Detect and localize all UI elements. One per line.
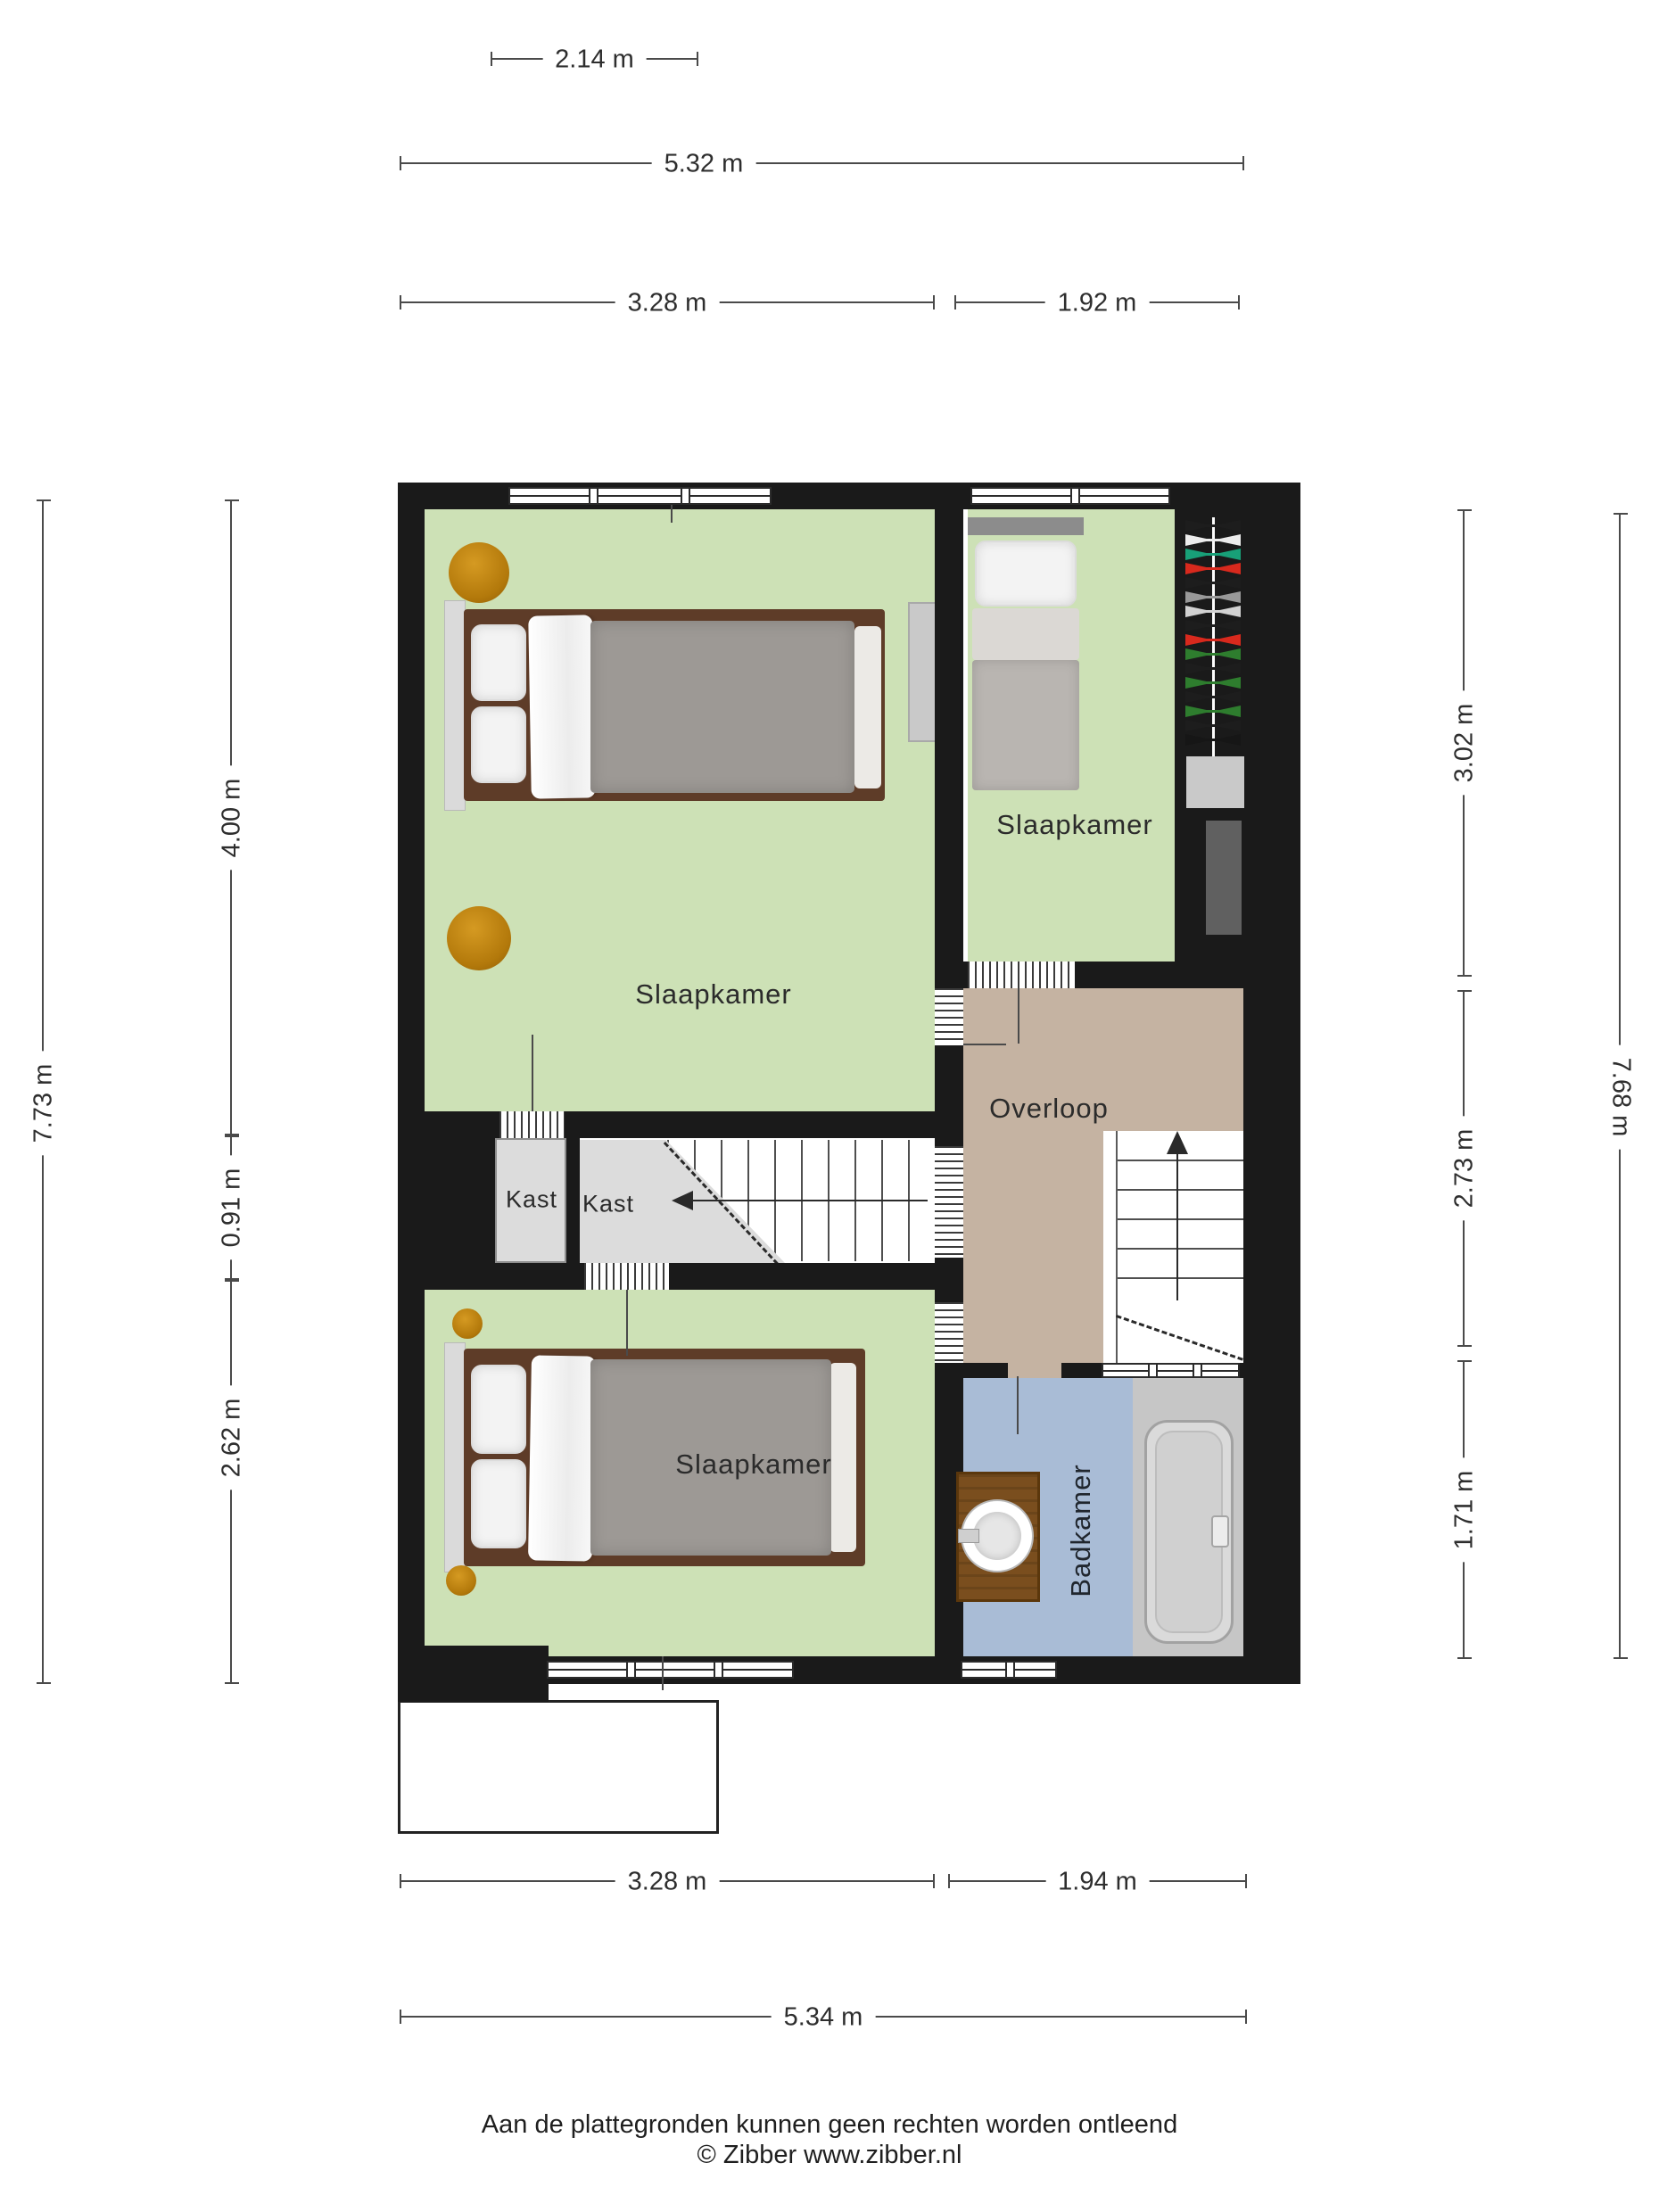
clothes-hanger-icon — [1185, 634, 1241, 646]
clothes-hanger-icon — [1185, 677, 1241, 689]
window-mullion — [589, 487, 598, 505]
window-mullion — [1005, 1661, 1015, 1679]
clothes-hanger-icon — [1185, 520, 1241, 532]
door-frame-tick — [963, 1044, 1006, 1045]
dim-left-total: 7.73 m — [42, 499, 44, 1684]
dim-right-mid: 2.73 m — [1463, 990, 1465, 1347]
dim-bottom-total: 5.34 m — [400, 2016, 1247, 2018]
dim-label: 3.28 m — [615, 1868, 720, 1897]
door-leaf — [1017, 1376, 1019, 1434]
dim-label: 5.34 m — [772, 2003, 876, 2033]
clothes-hanger-icon — [1185, 720, 1241, 731]
stairs-landing-arrow-line — [1176, 1152, 1178, 1300]
dim-label: 1.71 m — [1450, 1457, 1480, 1562]
window-mullion — [714, 1661, 723, 1679]
stairs-mid-arrow-icon — [672, 1191, 693, 1210]
stairs-mid-arrow-line — [691, 1200, 928, 1201]
clothes-hanger-icon — [1185, 663, 1241, 674]
wardrobe-shelf — [1186, 756, 1244, 808]
bed-pillow — [471, 706, 526, 783]
window-bathroom-top — [1102, 1363, 1240, 1378]
pouf — [452, 1308, 483, 1339]
room-label-bedroom-front: Slaapkamer — [675, 1449, 831, 1481]
bed-mattress-edge — [829, 1363, 856, 1552]
wall-left — [398, 483, 425, 1684]
door-leaf — [1018, 988, 1019, 1044]
window-top-right — [970, 487, 1170, 505]
bed-pillow — [471, 1459, 526, 1548]
shaft — [1206, 821, 1242, 935]
window-mullion — [626, 1661, 636, 1679]
room-label-landing: Overloop — [989, 1093, 1109, 1125]
clothes-hanger-icon — [1185, 549, 1241, 560]
room-label-closet-right: Kast — [582, 1191, 634, 1218]
wall-right-upper — [1274, 483, 1300, 970]
clothes-hanger-icon — [1185, 620, 1241, 631]
dim-label: 0.91 m — [218, 1156, 247, 1260]
clothes-hanger-icon — [1185, 534, 1241, 546]
dim-label: 7.68 m — [1606, 1045, 1636, 1150]
clothes-hanger-icon — [1185, 591, 1241, 603]
door-bedroom-back — [968, 962, 1075, 988]
door-landing-lower — [935, 1302, 963, 1363]
door-leaf — [626, 1290, 628, 1356]
clothes-hanger-icon — [1185, 691, 1241, 703]
clothes-hanger-icon — [1185, 648, 1241, 660]
bed-headboard — [444, 600, 466, 811]
dim-label: 2.62 m — [218, 1385, 247, 1490]
pouf — [446, 1565, 476, 1596]
dim-top-total: 5.32 m — [400, 162, 1244, 164]
wardrobe-rack — [1179, 517, 1247, 756]
wall-tick — [671, 505, 673, 523]
bed-mattress-edge — [854, 626, 881, 788]
window-mullion — [1193, 1363, 1202, 1378]
window-mullion — [1148, 1363, 1158, 1378]
bathtub-faucet-icon — [1211, 1515, 1229, 1548]
dim-left-mid: 0.91 m — [230, 1135, 232, 1280]
floor-bedroom-main — [425, 509, 935, 1111]
stairs-landing-arrow-icon — [1167, 1131, 1188, 1154]
dim-label: 1.94 m — [1045, 1868, 1150, 1897]
bed-sheet — [528, 1355, 596, 1561]
floorplan-page: { "rooms": { "bedroom_main": "Slaapkamer… — [0, 0, 1659, 2212]
pouf — [449, 542, 509, 603]
bed-headboard — [968, 517, 1084, 535]
dim-right-top: 3.02 m — [1463, 509, 1465, 977]
window-mullion — [681, 487, 690, 505]
dim-right-total: 7.68 m — [1619, 513, 1621, 1659]
bathtub — [1144, 1420, 1234, 1644]
stairs-landing-treads — [1118, 1160, 1243, 1307]
wall-right-lower — [1243, 962, 1300, 1684]
room-label-bedroom-back: Slaapkamer — [996, 809, 1152, 841]
clothes-hanger-icon — [1185, 563, 1241, 574]
dormer-outline — [398, 1700, 719, 1834]
dim-bottom-right: 1.94 m — [948, 1880, 1247, 1882]
door-leaf — [532, 1035, 533, 1111]
dim-label: 3.02 m — [1450, 691, 1480, 796]
bed-blanket — [590, 621, 854, 793]
bed-pillow — [471, 624, 526, 701]
window-bottom-bedroom — [547, 1661, 794, 1679]
bed-pillow — [975, 541, 1077, 607]
pouf — [447, 906, 511, 970]
clothes-hanger-icon — [1185, 734, 1241, 746]
bed-sheet — [972, 608, 1079, 660]
dim-label: 7.73 m — [29, 1052, 59, 1156]
clothes-hanger-icon — [1185, 706, 1241, 717]
room-label-bathroom: Badkamer — [1065, 1464, 1097, 1597]
door-closet-left — [499, 1111, 565, 1138]
door-bedroom-main — [935, 988, 963, 1045]
bed-mattress — [972, 660, 1079, 790]
bed-sheet — [528, 615, 596, 798]
sink-tap-icon — [958, 1529, 979, 1543]
room-label-bedroom-main: Slaapkamer — [635, 978, 791, 1011]
dim-bottom-left: 3.28 m — [400, 1880, 935, 1882]
window-top-left — [508, 487, 772, 505]
door-bathroom-opening — [1008, 1363, 1061, 1378]
dim-top-left: 3.28 m — [400, 301, 935, 303]
dim-label: 4.00 m — [218, 765, 247, 870]
wall-bottom-left-block — [398, 1646, 549, 1702]
dim-top-right: 1.92 m — [954, 301, 1240, 303]
clothes-hanger-icon — [1185, 606, 1241, 617]
dim-top-small: 2.14 m — [491, 58, 698, 60]
window-bottom-bathroom — [961, 1661, 1057, 1679]
bed-pillow — [471, 1365, 526, 1454]
door-bedroom-front — [584, 1263, 669, 1290]
dim-label: 2.73 m — [1450, 1117, 1480, 1221]
footer-copyright: © Zibber www.zibber.nl — [0, 2141, 1659, 2170]
dim-left-top: 4.00 m — [230, 499, 232, 1135]
dim-label: 1.92 m — [1045, 289, 1150, 318]
window-mullion — [1070, 487, 1080, 505]
clothes-hanger-icon — [1185, 577, 1241, 589]
dim-label: 3.28 m — [615, 289, 720, 318]
bed-headboard — [444, 1342, 466, 1572]
door-stairs — [935, 1146, 963, 1258]
sink-basin — [973, 1512, 1021, 1560]
wall-mid-bottom — [425, 1263, 963, 1290]
wall-closet-divider — [566, 1138, 580, 1263]
dim-label: 5.32 m — [652, 150, 756, 179]
wall-tick — [662, 1656, 664, 1690]
dim-right-bottom: 1.71 m — [1463, 1360, 1465, 1659]
dim-left-bottom: 2.62 m — [230, 1280, 232, 1684]
room-label-closet-left: Kast — [506, 1186, 557, 1214]
footer-disclaimer: Aan de plattegronden kunnen geen rechten… — [0, 2110, 1659, 2140]
dim-label: 2.14 m — [542, 45, 647, 75]
